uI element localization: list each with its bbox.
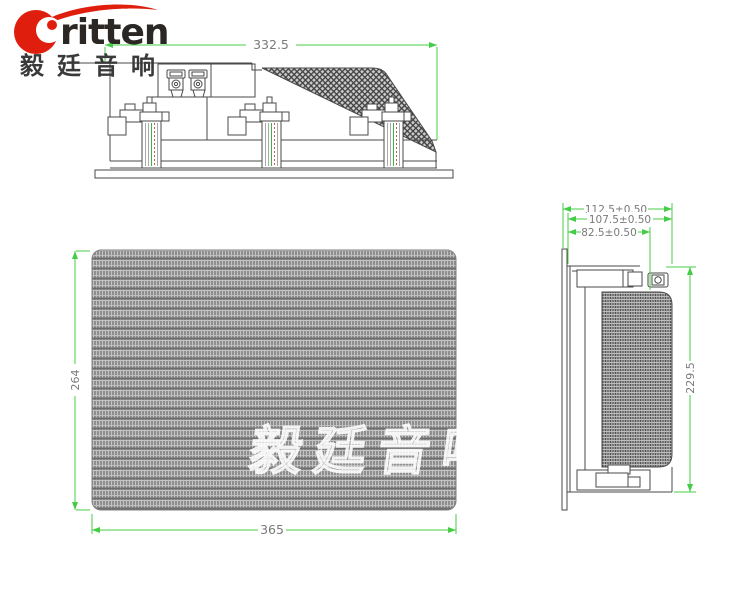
brand-logo: ritten 毅廷音响 bbox=[0, 0, 210, 90]
clamp-block bbox=[628, 272, 642, 286]
dim-value: 82.5±0.50 bbox=[581, 227, 637, 239]
dim-value: 365 bbox=[260, 522, 284, 537]
spring-clamp bbox=[108, 97, 169, 168]
baseplate bbox=[95, 170, 453, 178]
front-panel-edge bbox=[567, 266, 570, 492]
dim-front-height: 264 bbox=[69, 251, 90, 510]
top-clamp-arm bbox=[577, 270, 633, 287]
dim-value: 107.5±0.50 bbox=[589, 214, 651, 226]
mounting-flange bbox=[562, 249, 567, 510]
dim-value: 264 bbox=[69, 370, 82, 391]
technical-drawing: 332.5 264 365 bbox=[0, 0, 750, 600]
side-mesh-section bbox=[602, 292, 672, 467]
logo-e-dot bbox=[47, 20, 57, 30]
dim-value: 229.5 bbox=[684, 362, 697, 394]
watermark-text: 毅廷音响 bbox=[246, 424, 554, 481]
cone-section-hatch bbox=[262, 68, 436, 152]
spring-clamp bbox=[228, 97, 289, 168]
dim-front-width: 365 bbox=[92, 514, 456, 537]
side-view: 112.5±0.50 107.5±0.50 82.5±0.50 229 bbox=[562, 202, 697, 510]
brand-chinese-text: 毅廷音响 bbox=[20, 46, 168, 81]
drawing-sheet: 332.5 264 365 bbox=[0, 0, 750, 600]
dim-value: 332.5 bbox=[253, 37, 289, 52]
clamp-body bbox=[596, 473, 628, 487]
front-view: 264 365 bbox=[69, 250, 456, 537]
clamp-tab-right bbox=[628, 477, 640, 487]
logo-e-cutout bbox=[36, 17, 62, 43]
